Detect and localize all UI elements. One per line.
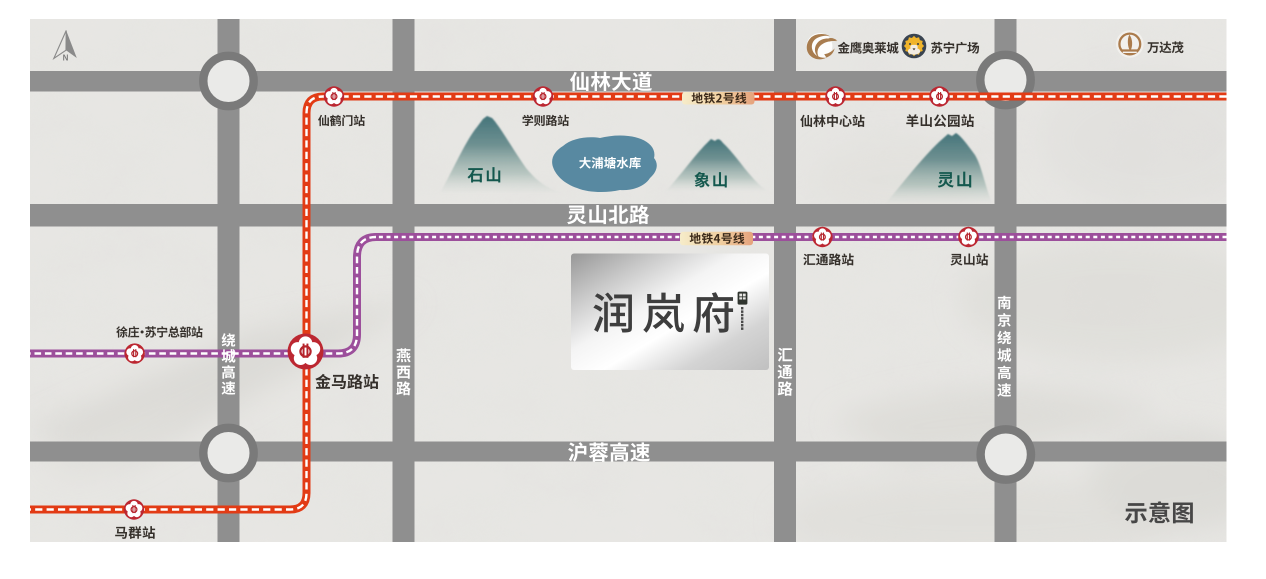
svg-text:N: N bbox=[63, 54, 69, 63]
